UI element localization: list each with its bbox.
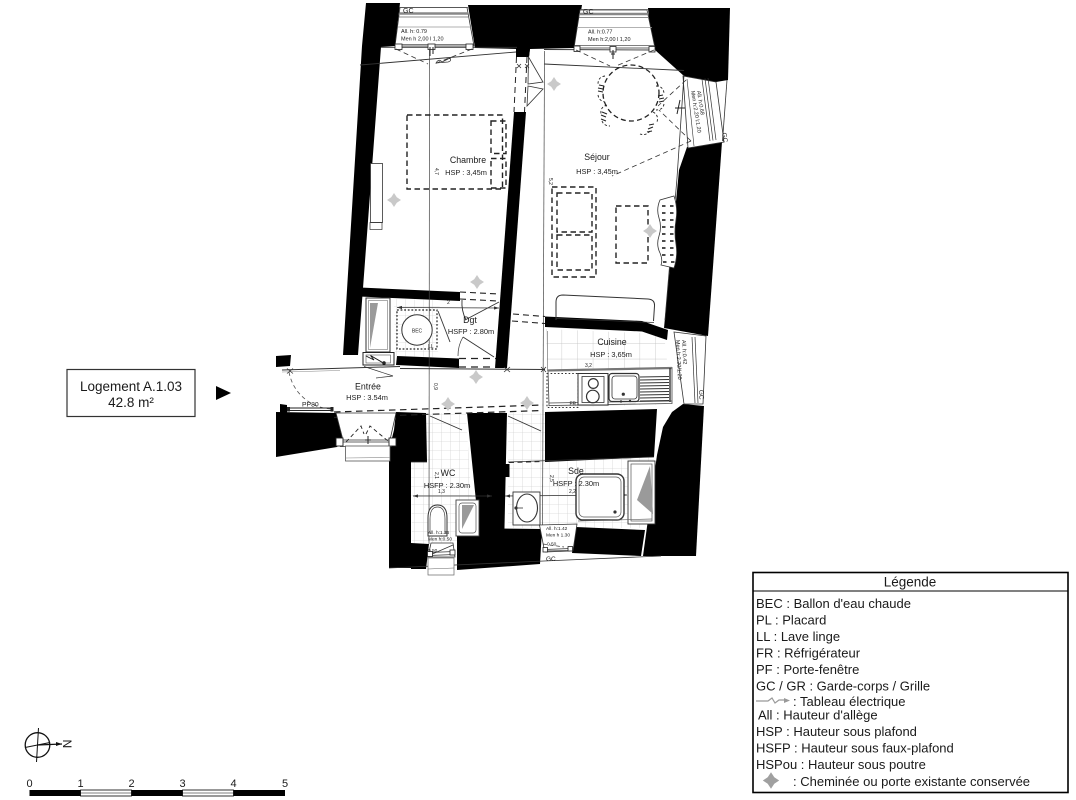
svg-text:Men h 2,00 l 1,20: Men h 2,00 l 1,20	[401, 37, 444, 43]
svg-text:42.8 m²: 42.8 m²	[108, 395, 154, 410]
svg-text:GC: GC	[697, 390, 705, 400]
svg-text:Dgt: Dgt	[463, 315, 477, 325]
svg-text:5,2: 5,2	[547, 178, 553, 185]
svg-text:FR: FR	[570, 402, 577, 408]
svg-text:PL : Placard: PL : Placard	[756, 613, 826, 628]
svg-text:All. h: 0.79: All. h: 0.79	[401, 29, 427, 35]
svg-text:3: 3	[179, 778, 185, 790]
svg-text:N: N	[60, 740, 74, 749]
svg-text:4: 4	[230, 778, 236, 790]
svg-text:All. h:1.36: All. h:1.36	[428, 530, 450, 536]
svg-text:GC / GR : Garde-corps / Grille: GC / GR : Garde-corps / Grille	[756, 679, 930, 694]
svg-text:2: 2	[128, 778, 134, 790]
svg-text:Sde: Sde	[568, 466, 584, 476]
svg-text:HSP : 3,65m: HSP : 3,65m	[590, 350, 632, 359]
svg-text:2,1: 2,1	[433, 472, 439, 479]
svg-text:GC: GC	[403, 8, 414, 15]
svg-text:LL: LL	[428, 344, 434, 350]
svg-text:: Cheminée ou porte existante: : Cheminée ou porte existante conservée	[793, 774, 1030, 789]
svg-text:Entrée: Entrée	[355, 382, 381, 392]
svg-text:Men h:2,00 l 1,20: Men h:2,00 l 1,20	[588, 37, 631, 43]
svg-text:5: 5	[282, 778, 288, 790]
svg-text:Légende: Légende	[884, 575, 937, 590]
svg-text:BEC: BEC	[412, 329, 423, 335]
svg-text:Men h 1.30: Men h 1.30	[546, 533, 570, 539]
svg-text:HSFP : 2.30m: HSFP : 2.30m	[553, 479, 599, 488]
svg-text:GC: GC	[583, 9, 594, 16]
svg-text:All. h:1.42: All. h:1.42	[546, 526, 568, 532]
svg-text:HSP : 3,45m: HSP : 3,45m	[445, 168, 487, 177]
svg-text:FR : Réfrigérateur: FR : Réfrigérateur	[756, 646, 861, 661]
svg-text:0.50: 0.50	[428, 548, 438, 554]
svg-text:HSP : 3,45m: HSP : 3,45m	[576, 167, 618, 176]
svg-text:Cuisine: Cuisine	[597, 337, 626, 347]
svg-text:Chambre: Chambre	[450, 155, 486, 165]
svg-text:BEC : Ballon d'eau chaude: BEC : Ballon d'eau chaude	[756, 596, 911, 611]
svg-text:HSPou : Hauteur sous poutre: HSPou : Hauteur sous poutre	[756, 757, 926, 772]
svg-text:Séjour: Séjour	[584, 152, 609, 162]
svg-text:HSFP : 2.30m: HSFP : 2.30m	[424, 481, 470, 490]
svg-text:All. h:0.77: All. h:0.77	[588, 30, 612, 36]
svg-text:3,2: 3,2	[585, 363, 592, 369]
svg-text:1: 1	[77, 778, 83, 790]
svg-text:2,2: 2,2	[569, 489, 576, 495]
svg-text:0,9: 0,9	[432, 383, 438, 390]
svg-text:2: 2	[447, 300, 450, 306]
svg-text:4,7: 4,7	[433, 168, 439, 175]
svg-text:HSFP : 2.80m: HSFP : 2.80m	[448, 327, 494, 336]
svg-text:WC: WC	[441, 468, 456, 478]
svg-text:PP80: PP80	[302, 402, 319, 409]
svg-text:0.50: 0.50	[547, 542, 557, 548]
svg-text:HSP : Hauteur sous plafond: HSP : Hauteur sous plafond	[756, 724, 917, 739]
svg-text:GC: GC	[546, 556, 556, 563]
svg-text:Logement A.1.03: Logement A.1.03	[80, 379, 182, 394]
svg-text:PF : Porte-fenêtre: PF : Porte-fenêtre	[756, 662, 859, 677]
svg-text:HSP : 3.54m: HSP : 3.54m	[346, 393, 388, 402]
svg-text:0: 0	[26, 778, 32, 790]
svg-text:HSFP : Hauteur sous faux-plafo: HSFP : Hauteur sous faux-plafond	[756, 741, 954, 756]
svg-text:Men h:0.50: Men h:0.50	[428, 537, 452, 543]
svg-text:LL : Lave linge: LL : Lave linge	[756, 629, 840, 644]
svg-text:All : Hauteur d'allège: All : Hauteur d'allège	[758, 708, 878, 723]
